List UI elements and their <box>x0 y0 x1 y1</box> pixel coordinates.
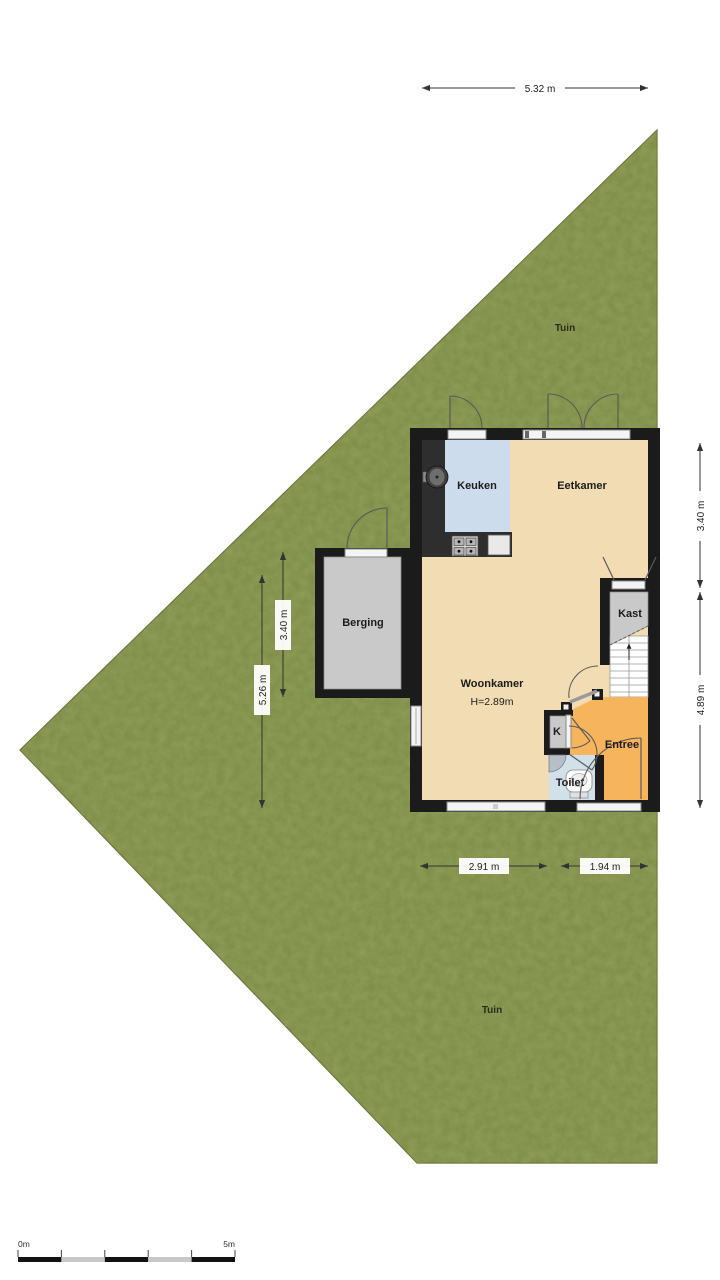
label-keuken: Keuken <box>457 480 497 492</box>
kitchen-door-frame <box>448 430 486 439</box>
label-ceiling-height: H=2.89m <box>471 696 514 708</box>
k-door-frame <box>566 715 571 748</box>
bottom-window-mullion <box>493 804 498 809</box>
hal-door-hinge-left <box>564 705 569 710</box>
label-tuin-bottom: Tuin <box>482 1005 502 1016</box>
scale-segment <box>61 1257 104 1262</box>
label-tuin-top: Tuin <box>555 323 575 334</box>
front-door-frame <box>577 803 641 811</box>
french-doors-mullion-1 <box>525 431 529 438</box>
dim-bottom-left-label: 2.91 m <box>469 862 500 873</box>
dim-right-lower-label: 4.89 m <box>696 685 707 716</box>
stairs-left-wall <box>600 592 611 665</box>
kitchen-counter-left <box>422 440 445 557</box>
label-toilet: Toilet <box>556 777 585 789</box>
stairs-icon <box>610 636 648 697</box>
berging-door-frame <box>345 549 387 557</box>
label-eetkamer: Eetkamer <box>557 480 607 492</box>
scale-bar: 0m 5m <box>18 1239 235 1262</box>
label-entree: Entree <box>605 739 639 751</box>
label-woonkamer: Woonkamer <box>461 678 524 690</box>
stove-icon <box>452 536 478 556</box>
label-berging: Berging <box>342 617 384 629</box>
scale-end-label: 5m <box>223 1239 235 1249</box>
french-doors-mullion-2 <box>542 431 546 438</box>
scale-segment <box>105 1257 148 1262</box>
french-doors-frame <box>523 430 630 439</box>
dim-right-upper-label: 3.40 m <box>696 501 707 532</box>
scale-segment <box>18 1257 61 1262</box>
scale-segment <box>148 1257 191 1262</box>
dim-bottom-right-label: 1.94 m <box>590 862 621 873</box>
dim-top-label: 5.32 m <box>525 84 556 95</box>
house: Kast K Toilet <box>410 394 660 812</box>
kast-door-frame <box>612 581 645 589</box>
k-bottom-wall <box>544 748 570 755</box>
floor-plan-drawing: Tuin Tuin Berging <box>0 0 720 1280</box>
scale-start-label: 0m <box>18 1239 30 1249</box>
floor-plan-page: Tuin Tuin Berging <box>0 0 720 1280</box>
scale-segment <box>192 1257 235 1262</box>
dim-left-outer-label: 5.26 m <box>258 675 269 706</box>
label-kast: Kast <box>618 608 642 620</box>
label-k: K <box>553 726 561 738</box>
kitchen-counter-white <box>488 535 510 555</box>
dim-left-inner-label: 3.40 m <box>279 610 290 641</box>
